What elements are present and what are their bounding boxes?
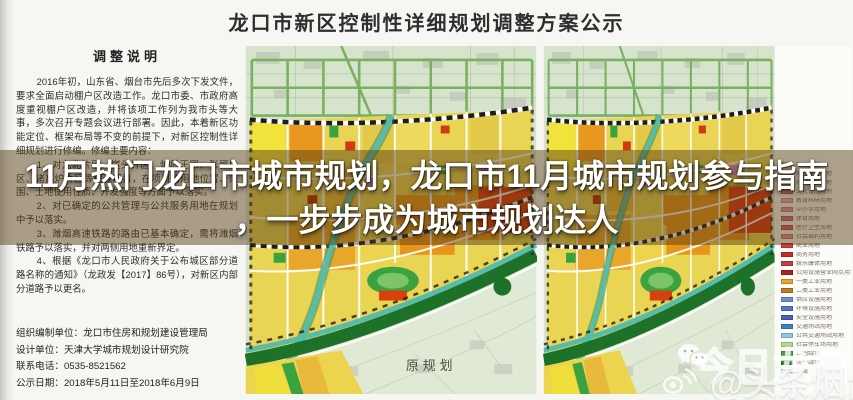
notice-item-4: 4、根据《龙口市人民政府关于公布城区部分道路名称的通知》（龙政发【2017】86… [16, 254, 238, 295]
legend-swatch-icon [781, 288, 793, 293]
legend-item: 供应设施用地 [781, 295, 851, 304]
map-label-original: 原规划 [406, 358, 457, 373]
legend-label: 交通场站用地 [796, 324, 832, 330]
legend-item: 交通场站用地 [781, 322, 851, 331]
legend-swatch-icon [781, 279, 793, 284]
headline-banner: 11月热门龙口市城市规划，龙口市11月城市规划参与指南 ，一步步成为城市规划达人 [0, 150, 853, 245]
headline-line-2: ，一步步成为城市规划达人 [234, 200, 618, 240]
legend-label: 一类工业用地 [796, 279, 832, 285]
notice-footer: 组织编制单位：龙口市住房和规划建设管理局 设计单位：天津大学城市规划设计研究院 … [16, 326, 238, 392]
notice-phone: 联系电话：0535-8521562 [16, 359, 238, 376]
watermark-handle: @头条烟台 [710, 356, 853, 400]
legend-swatch-icon [781, 315, 793, 320]
legend-item: 环境设施用地 [781, 304, 851, 313]
legend-label: 二类工业用地 [796, 288, 832, 294]
weibo-icon [660, 366, 698, 396]
page-title: 龙口市新区控制性详细规划调整方案公示 [0, 7, 853, 36]
notice-designer: 设计单位：天津大学城市规划设计研究院 [16, 343, 238, 360]
notice-image: 龙口市新区控制性详细规划调整方案公示 调整说明 2016年初，山东省、烟台市先后… [0, 0, 853, 400]
legend-swatch-icon [781, 261, 793, 266]
legend-swatch-icon [781, 297, 793, 302]
legend-item: 娱乐康体用地 [781, 259, 851, 268]
legend-label: 安全设施用地 [796, 315, 832, 321]
headline-line-1: 11月热门龙口市城市规划，龙口市11月城市规划参与指南 [25, 156, 829, 196]
legend-label: 环境设施用地 [796, 306, 832, 312]
legend-item: 公用设施营业网点用地 [781, 268, 851, 277]
legend-swatch-icon [781, 270, 793, 275]
legend-label: 供应设施用地 [796, 297, 832, 303]
notice-intro: 2016年初，山东省、烟台市先后多次下发文件，要求全面启动棚户区改造工作。龙口市… [16, 75, 238, 158]
notice-organizer: 组织编制单位：龙口市住房和规划建设管理局 [16, 326, 238, 343]
legend-label: 商务用地 [796, 252, 820, 258]
legend-item: 商务用地 [781, 250, 851, 259]
legend-item: 二类工业用地 [781, 286, 851, 295]
notice-heading: 调整说明 [16, 46, 238, 65]
legend-label: 公用设施营业网点用地 [796, 270, 851, 276]
legend-swatch-icon [781, 252, 793, 257]
legend-item: 一类工业用地 [781, 277, 851, 286]
legend-swatch-icon [781, 324, 793, 329]
legend-item: 安全设施用地 [781, 313, 851, 322]
legend-swatch-icon [781, 306, 793, 311]
legend-label: 娱乐康体用地 [796, 261, 832, 267]
notice-period: 公示日期：2018年5月11日至2018年6月9日 [16, 376, 238, 393]
